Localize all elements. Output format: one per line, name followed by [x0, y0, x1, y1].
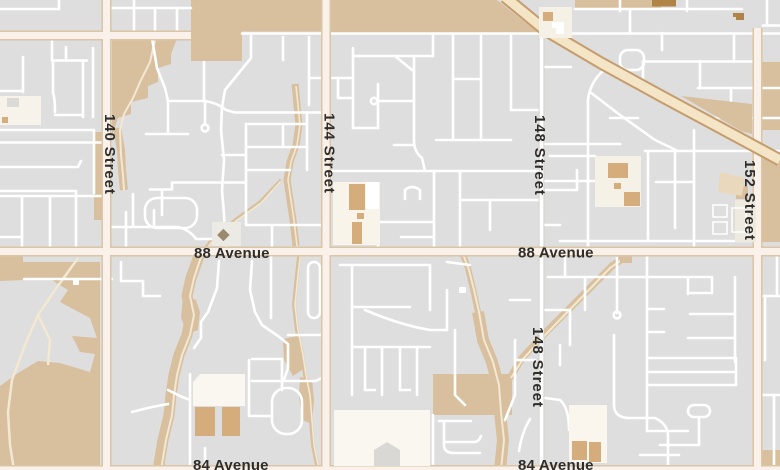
svg-text:152 Street: 152 Street — [741, 160, 758, 241]
svg-text:140 Street: 140 Street — [101, 114, 118, 195]
svg-text:88 Avenue: 88 Avenue — [194, 245, 270, 262]
svg-text:84 Avenue: 84 Avenue — [518, 457, 594, 470]
svg-text:84 Avenue: 84 Avenue — [193, 457, 269, 470]
svg-text:148 Street: 148 Street — [531, 115, 548, 196]
svg-text:88 Avenue: 88 Avenue — [518, 245, 594, 262]
svg-text:148 Street: 148 Street — [529, 327, 546, 408]
svg-text:144 Street: 144 Street — [321, 113, 338, 194]
